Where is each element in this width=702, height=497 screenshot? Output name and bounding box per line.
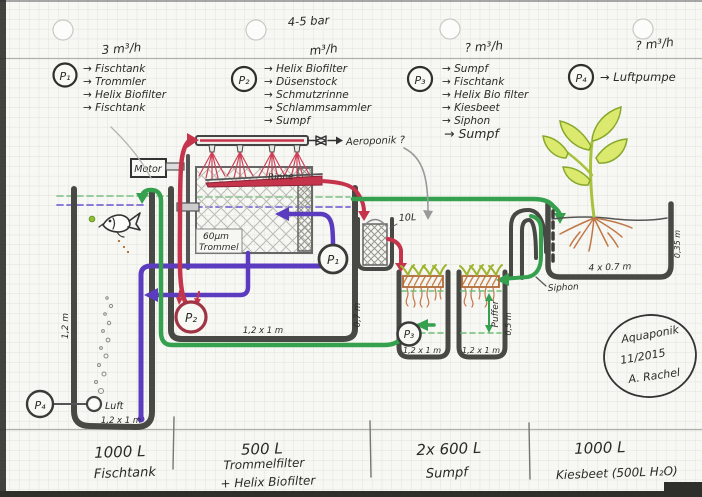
p1-target: → Fischtank [83,102,146,114]
p3-target: → Fischtank [442,76,505,88]
scanned-sketch-page: 3 m³/h P₁ → Fischtank → Trommler → Helix… [0,0,702,497]
rinne-label: Rinne [268,172,294,183]
p1-target: → Fischtank [83,63,146,75]
section-volume: 1000 L [574,438,626,458]
air-stone-label: Luft [105,401,125,412]
p1-legend-label: P₁ [59,70,70,83]
sump1-base-dim: 1,2 x 1 m [403,346,441,355]
bed-height-dim: 0,35 m [673,230,682,258]
canister-body [363,224,387,265]
siphon-label: Siphon [548,282,580,294]
pump-p4-label: P₄ [34,399,46,412]
pressure-note: 4-5 bar [287,13,330,29]
p3-target: → Helix Bio filter [442,89,529,101]
p2-target: → Helix Biofilter [264,63,348,75]
p2-target: → Schmutzrinne [264,89,349,101]
p2-target: → Schlammsammler [264,102,372,114]
floating-raft-1 [403,276,443,287]
p2-legend-label: P₂ [238,74,250,87]
p2-target: → Sumpf [264,115,312,127]
trommel-height-dim: 0,7 m [353,303,363,328]
section-volume: 2x 600 L [416,439,482,459]
section-name: Trommelfilter [223,456,305,473]
bed-base-dim: 4 x 0.7 m [588,262,631,273]
p2-target: → Düsenstock [264,76,338,88]
p4-target: → Luftpumpe [600,70,676,84]
air-stone [87,397,101,411]
p1-target: → Helix Biofilter [83,89,167,101]
p3-target: → Sumpf [444,126,500,141]
p3-target: → Kiesbeet [442,102,500,114]
drum-word-label: Trommel [199,243,239,253]
drum-micron-label: 60μm [203,232,229,242]
p2-flow-rate: m³/h [309,41,338,58]
section-name: Sumpf [426,465,471,482]
p3-target: → Sumpf [442,63,490,75]
section-name: Fischtank [94,465,157,482]
p1-flow-rate: 3 m³/h [101,40,141,57]
section-volume: 1000 L [94,442,146,462]
food-pellet [89,216,95,222]
pump-p2-label: P₂ [185,311,197,325]
pump-p3-label: P₃ [404,329,415,341]
pump-p1-label: P₁ [327,253,339,267]
fish-height-dim: 1,2 m [61,313,71,339]
fish-eye [109,220,112,223]
p1-target: → Trommler [83,76,146,88]
canister-volume-label: 10L [399,212,417,224]
scan-edge-bottom [0,491,702,497]
puffer-label: Puffer [491,299,501,327]
trommel-base-dim: 1,2 x 1 m [243,326,283,336]
scan-edge-top [0,0,702,2]
p3-legend-label: P₃ [414,74,426,87]
scan-edge-corner [664,482,702,497]
sump2-base-dim: 1,2 x 1 m [462,346,500,355]
p3-flow-rate: ? m³/h [464,38,503,55]
fish-base-dim: 1,2 x 1 m [101,416,141,426]
scan-edge-left [0,0,6,497]
sump-height-dim: 0,5 m [504,312,513,335]
aeroponik-label: Aeroponik ? [345,135,406,148]
floating-raft-2 [462,276,499,287]
p4-legend-label: P₄ [575,72,587,85]
